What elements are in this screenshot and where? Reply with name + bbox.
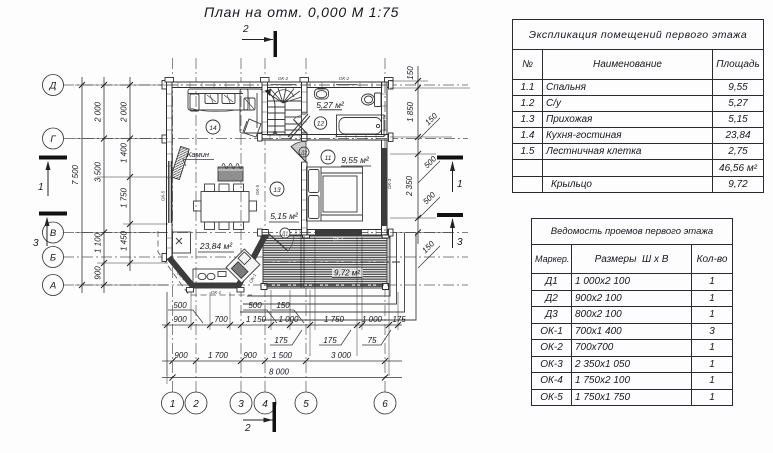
svg-text:3 500: 3 500	[94, 161, 103, 182]
svg-text:1: 1	[170, 399, 176, 410]
svg-text:Д1: Д1	[281, 232, 289, 238]
svg-text:4: 4	[262, 399, 268, 410]
svg-text:500: 500	[421, 190, 437, 206]
svg-text:900: 900	[174, 351, 188, 360]
svg-text:12: 12	[317, 121, 325, 128]
svg-text:1 450: 1 450	[120, 230, 129, 251]
svg-text:900: 900	[243, 351, 257, 360]
svg-text:9,72 м²: 9,72 м²	[334, 269, 360, 278]
svg-text:14: 14	[209, 125, 217, 132]
svg-text:1 750: 1 750	[324, 315, 345, 324]
svg-text:150: 150	[423, 111, 439, 127]
svg-text:1 150: 1 150	[246, 315, 267, 324]
svg-text:175: 175	[323, 336, 337, 345]
svg-text:1 700: 1 700	[208, 351, 229, 360]
svg-text:2: 2	[242, 24, 249, 35]
svg-text:175: 175	[392, 315, 406, 324]
svg-text:3 000: 3 000	[331, 351, 352, 360]
svg-text:2: 2	[192, 399, 199, 410]
svg-text:1 000: 1 000	[362, 315, 383, 324]
svg-text:3: 3	[457, 237, 463, 248]
svg-text:ОК-2: ОК-2	[339, 76, 350, 81]
svg-text:ОК-1: ОК-1	[211, 290, 222, 295]
svg-text:Г: Г	[50, 134, 56, 145]
svg-text:500: 500	[173, 301, 187, 310]
svg-text:1 750: 1 750	[120, 187, 129, 208]
svg-text:1 400: 1 400	[120, 142, 129, 163]
svg-text:Камин: Камин	[187, 150, 209, 159]
svg-text:9,55 м²: 9,55 м²	[341, 155, 370, 165]
svg-text:23,84 м²: 23,84 м²	[199, 241, 233, 251]
svg-text:Б: Б	[50, 253, 56, 264]
svg-text:ОК-2: ОК-2	[278, 76, 289, 81]
svg-text:1: 1	[457, 179, 463, 190]
svg-text:А: А	[49, 281, 56, 292]
svg-text:150: 150	[406, 66, 415, 80]
svg-text:2: 2	[244, 423, 251, 434]
svg-text:150: 150	[420, 239, 436, 255]
svg-text:6: 6	[382, 399, 388, 410]
svg-text:13: 13	[273, 187, 281, 194]
svg-text:3: 3	[33, 238, 39, 249]
svg-text:5: 5	[303, 399, 309, 410]
svg-text:Д2: Д2	[300, 151, 308, 157]
svg-text:1: 1	[38, 182, 44, 193]
svg-text:1 000: 1 000	[278, 315, 299, 324]
svg-text:11: 11	[325, 155, 332, 162]
svg-text:500: 500	[422, 154, 438, 170]
svg-text:ОК-4: ОК-4	[333, 237, 344, 242]
svg-text:500: 500	[248, 301, 262, 310]
svg-text:1 850: 1 850	[406, 101, 415, 122]
svg-text:175: 175	[274, 336, 288, 345]
svg-text:75: 75	[368, 336, 377, 345]
svg-text:3: 3	[238, 399, 244, 410]
svg-text:1 500: 1 500	[272, 351, 293, 360]
svg-text:1 100: 1 100	[94, 232, 103, 253]
svg-text:ОК-5: ОК-5	[255, 184, 260, 195]
svg-text:5,27 м²: 5,27 м²	[316, 100, 345, 110]
svg-text:7 500: 7 500	[71, 164, 80, 185]
svg-text:900: 900	[94, 266, 103, 280]
svg-text:2 000: 2 000	[94, 101, 103, 123]
svg-text:2 350: 2 350	[405, 175, 414, 197]
svg-text:Д: Д	[49, 81, 57, 92]
svg-text:2 000: 2 000	[120, 101, 129, 123]
svg-text:5,15 м²: 5,15 м²	[270, 211, 299, 221]
svg-text:ОК-3: ОК-3	[387, 178, 392, 189]
svg-text:150: 150	[276, 301, 290, 310]
svg-text:В: В	[50, 228, 57, 239]
svg-text:700: 700	[214, 315, 228, 324]
svg-text:900: 900	[173, 315, 187, 324]
svg-text:ОК-5: ОК-5	[161, 190, 166, 201]
svg-text:8 000: 8 000	[269, 368, 290, 377]
